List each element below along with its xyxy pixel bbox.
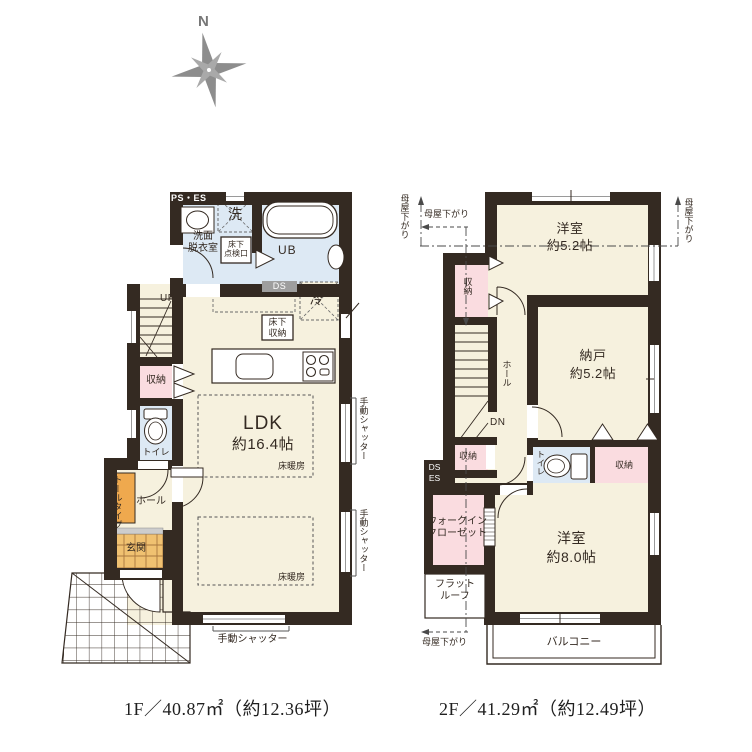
manual-shutter-label-1: 手動シャッター: [358, 397, 367, 460]
floor-heating-label-2: 床暖房: [278, 572, 305, 583]
storage-1f-label: 収納: [140, 375, 172, 387]
hall-1f-label: ホール: [136, 496, 166, 508]
hall-2f-label: ホール: [501, 360, 510, 387]
moya-sagari-right-vertical: 母屋下がり: [683, 198, 692, 243]
ldk-size-label: 約16.4帖: [183, 436, 343, 454]
washroom-label: 洗面 脱衣室: [180, 231, 226, 255]
tall-cabinet-label: トールタイプ: [112, 475, 121, 508]
floor1-caption: 1F／40.87㎡（約12.36坪）: [95, 699, 370, 720]
manual-shutter-label-3: 手動シャッター: [210, 634, 295, 646]
storage-2f-right-label: 収納: [595, 460, 653, 471]
bedroom52-name-label: 洋室: [510, 221, 630, 236]
fridge-label: 冷: [310, 292, 324, 307]
ds-es-label: DS ES: [424, 462, 445, 483]
storage-2f-top-label: 収納: [462, 277, 471, 295]
kitchen-counter: [212, 349, 335, 383]
compass-north-label: N: [198, 13, 209, 31]
moya-sagari-left-horizontal: 母屋下がり: [424, 209, 469, 220]
bedroom80-size-label: 約8.0帖: [495, 549, 648, 566]
manual-shutter-label-2: 手動シャッター: [358, 509, 367, 572]
kitchen-sink-icon: [236, 354, 273, 379]
stove-icon: [303, 352, 333, 381]
bedroom52-size-label: 約5.2帖: [510, 238, 630, 253]
nando-name-label: 納戸: [533, 348, 653, 363]
genkan-label: 玄関: [126, 543, 146, 555]
moya-sagari-bottom: 母屋下がり: [422, 637, 467, 648]
bedroom80-name-label: 洋室: [495, 530, 648, 547]
stairs-dn-label: DN: [490, 417, 505, 429]
underfloor-access-label: 床下 点検口: [221, 240, 251, 259]
vanity-sink-icon: [181, 207, 214, 233]
underfloor-storage-label: 床下 収納: [262, 317, 293, 338]
ds-label-1f: DS: [262, 281, 297, 292]
wic-label: ウォークイン クローゼット: [423, 516, 491, 540]
moya-sagari-left-vertical: 母屋下がり: [399, 194, 408, 239]
ldk-name-label: LDK: [183, 413, 343, 435]
toilet-1f-icon: [144, 409, 167, 444]
washer-label: 洗: [228, 206, 243, 223]
floorplan-page: N PS・ES 洗 洗面 脱衣室 床下 点検口 UB DS 冷 UP 床下 収納…: [0, 0, 752, 752]
toilet-1f-label: トイレ: [138, 447, 174, 458]
nando-size-label: 約5.2帖: [533, 366, 653, 381]
balcony-label: バルコニー: [487, 636, 661, 649]
unit-bath-label: UB: [278, 243, 297, 257]
toilet-2f-label: トイレ: [536, 450, 545, 476]
floor-heating-label-1: 床暖房: [278, 461, 305, 472]
compass-rose: [165, 26, 253, 114]
flat-roof-label: フラット ルーフ: [427, 579, 483, 603]
storage-2f-left-label: 収納: [448, 451, 488, 462]
ps-es-label: PS・ES: [171, 193, 207, 204]
floor2-caption: 2F／41.29㎡（約12.49坪）: [410, 699, 685, 720]
stairs-up-label: UP: [160, 293, 175, 305]
